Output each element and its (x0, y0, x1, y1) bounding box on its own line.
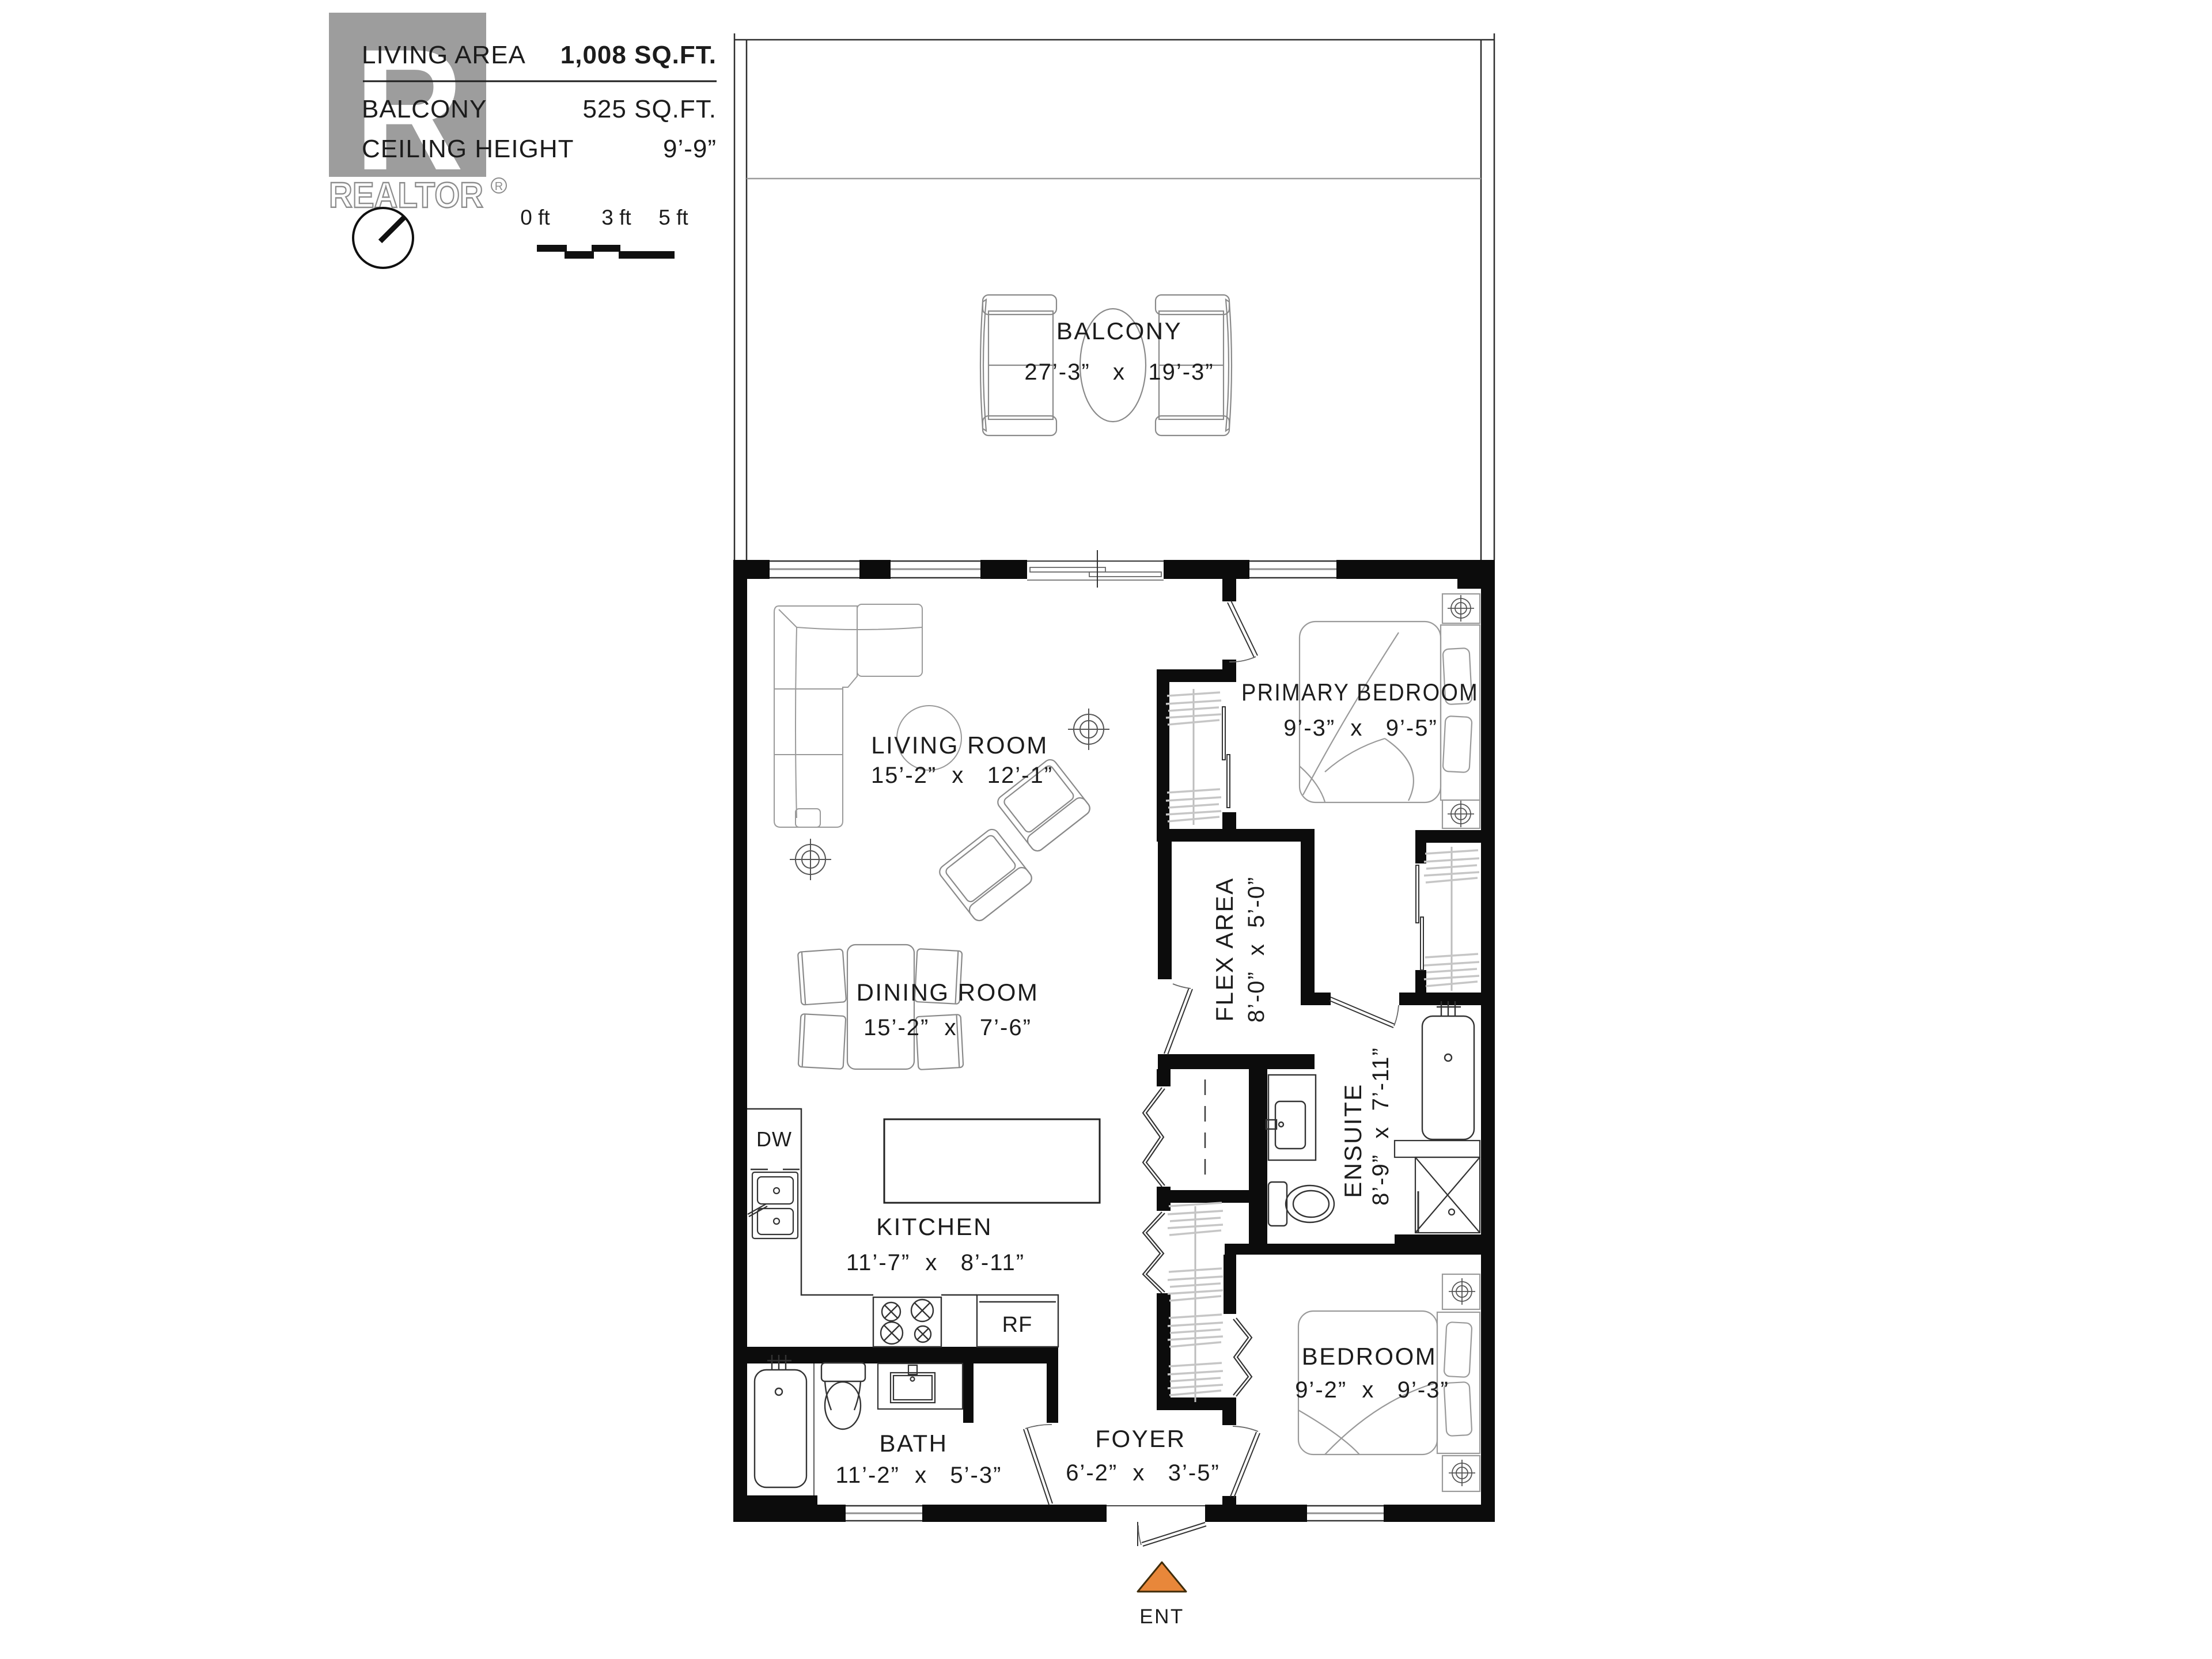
svg-text:LIVING ROOM: LIVING ROOM (871, 732, 1048, 759)
svg-text:525 SQ.FT.: 525 SQ.FT. (582, 95, 717, 123)
svg-text:0 ft: 0 ft (520, 206, 550, 229)
svg-text:5 ft: 5 ft (658, 206, 688, 229)
svg-text:CEILING HEIGHT: CEILING HEIGHT (362, 135, 574, 163)
svg-text:PRIMARY BEDROOM: PRIMARY BEDROOM (1241, 679, 1479, 706)
svg-text:DW: DW (756, 1127, 792, 1151)
svg-text:BALCONY: BALCONY (1056, 317, 1182, 344)
svg-text:15’-2” x 7’-6”: 15’-2” x 7’-6” (863, 1015, 1032, 1040)
svg-text:1,008 SQ.FT.: 1,008 SQ.FT. (560, 41, 717, 69)
svg-text:9’-2” x 9’-3”: 9’-2” x 9’-3” (1295, 1377, 1449, 1403)
svg-text:27’-3” x 19’-3”: 27’-3” x 19’-3” (1024, 359, 1214, 385)
svg-text:15’-2” x 12’-1”: 15’-2” x 12’-1” (871, 763, 1053, 788)
svg-text:8’-9” x 7’-11”: 8’-9” x 7’-11” (1368, 1047, 1393, 1206)
svg-text:9’-3” x 9’-5”: 9’-3” x 9’-5” (1283, 715, 1438, 741)
svg-text:R: R (495, 180, 503, 193)
svg-text:3 ft: 3 ft (601, 206, 631, 229)
svg-text:9’-9”: 9’-9” (663, 135, 717, 163)
svg-text:6’-2” x 3’-5”: 6’-2” x 3’-5” (1066, 1460, 1220, 1486)
svg-text:ENT: ENT (1139, 1605, 1184, 1628)
svg-text:11’-2” x 5’-3”: 11’-2” x 5’-3” (836, 1463, 1002, 1488)
svg-text:BEDROOM: BEDROOM (1302, 1343, 1437, 1370)
svg-text:REALTOR: REALTOR (329, 176, 483, 215)
svg-text:11’-7” x 8’-11”: 11’-7” x 8’-11” (846, 1250, 1025, 1275)
svg-text:DINING ROOM: DINING ROOM (857, 979, 1039, 1006)
svg-text:ENSUITE: ENSUITE (1339, 1083, 1366, 1198)
svg-text:KITCHEN: KITCHEN (876, 1213, 993, 1240)
svg-text:8’-0” x 5’-0”: 8’-0” x 5’-0” (1244, 876, 1269, 1023)
svg-text:RF: RF (1002, 1313, 1033, 1337)
svg-text:BALCONY: BALCONY (362, 95, 487, 123)
svg-text:LIVING AREA: LIVING AREA (362, 41, 526, 69)
svg-text:FLEX AREA: FLEX AREA (1211, 877, 1238, 1021)
svg-text:FOYER: FOYER (1095, 1425, 1185, 1452)
svg-text:BATH: BATH (880, 1430, 948, 1457)
